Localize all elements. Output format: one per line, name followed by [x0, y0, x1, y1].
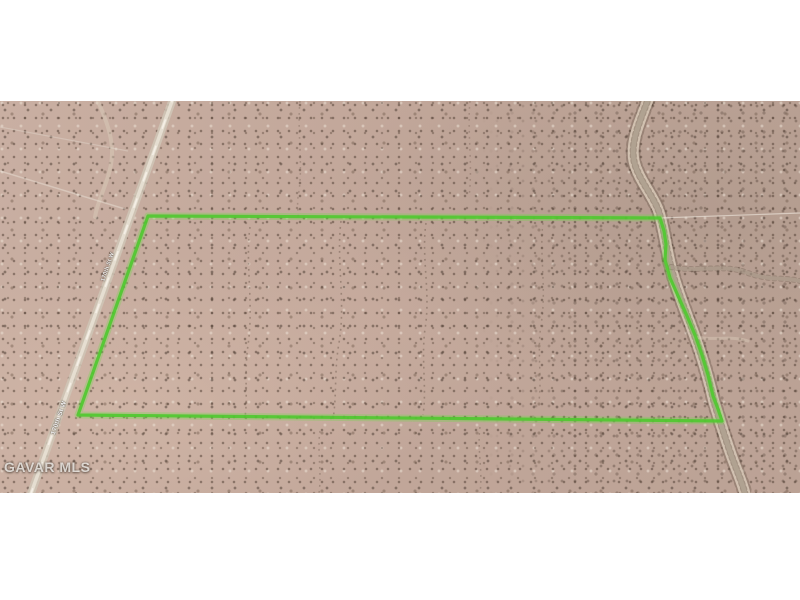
map-feature-overlay: [0, 101, 800, 493]
main-wash: [633, 101, 745, 493]
drainage-line: [298, 101, 301, 217]
letterbox-top: [0, 0, 800, 101]
parcel-boundary: [78, 216, 722, 421]
drainage-line: [479, 427, 481, 493]
drainage-line: [333, 221, 342, 419]
aerial-photo: 170th St W 170th St W GAVAR MLS: [0, 101, 800, 493]
drainage-line: [245, 227, 250, 417]
mls-watermark: GAVAR MLS: [4, 459, 90, 475]
listing-photo-page: 170th St W 170th St W GAVAR MLS: [0, 0, 800, 600]
wash-branch-1-speckles: [671, 267, 800, 281]
drainage-line: [319, 431, 320, 493]
drainage-line: [423, 223, 427, 415]
drainage-line: [469, 101, 470, 197]
drainage-line: [539, 223, 543, 401]
letterbox-bottom: [0, 493, 800, 600]
parcel-boundary-glow: [78, 216, 722, 421]
fence-line: [660, 213, 800, 218]
small-wash: [95, 101, 112, 217]
